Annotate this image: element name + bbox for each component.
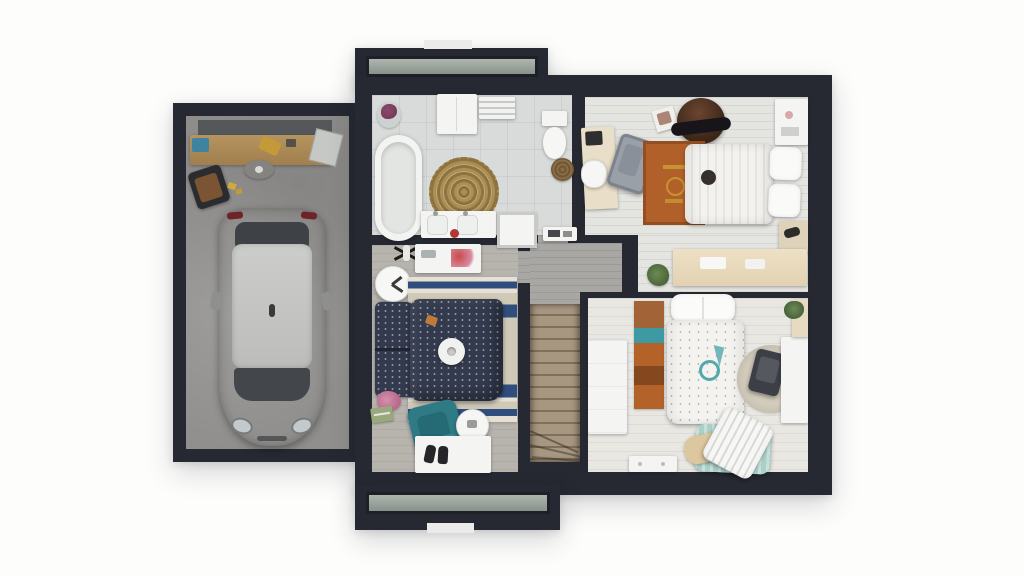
shoe-right — [438, 446, 449, 464]
window-sill-top — [424, 40, 472, 49]
sink-left — [427, 215, 448, 235]
faucet-left — [433, 211, 438, 216]
runner-rug — [634, 301, 664, 409]
bed2-pillows — [375, 302, 413, 397]
clock-hand-minute — [391, 283, 403, 292]
car — [219, 208, 325, 446]
bench-with-shoes — [415, 436, 491, 473]
bed1-duvet — [685, 144, 773, 224]
floor-stool — [244, 160, 274, 179]
wall-clock — [375, 266, 411, 302]
desk-clutter-red — [451, 249, 477, 267]
soap-red — [450, 229, 459, 238]
wall-cabinet — [437, 94, 477, 134]
towel-shelf — [479, 97, 515, 119]
bedroom2-doorway — [518, 251, 530, 283]
book — [370, 406, 394, 424]
floor-plan-render — [0, 0, 1024, 576]
window-strip-top — [366, 56, 538, 77]
bathtub — [375, 135, 422, 241]
power-tool — [258, 135, 282, 156]
papasan-chair — [677, 98, 725, 144]
bed1-pillows — [768, 146, 802, 217]
toolbox — [192, 138, 209, 152]
bed1-button — [701, 170, 716, 185]
car-roof — [232, 244, 312, 368]
window-sill-bottom — [427, 523, 474, 533]
faucet-right — [463, 211, 468, 216]
rug-emblem-bar-2 — [665, 199, 683, 203]
toilet — [541, 111, 568, 160]
sink-right — [457, 215, 478, 235]
shower-mat — [497, 212, 537, 248]
bedroom3-desk — [781, 337, 808, 423]
car-taillight-right — [301, 211, 318, 220]
car-taillight-left — [227, 211, 244, 220]
winder-step-edge-3 — [532, 456, 582, 462]
stair-landing — [530, 292, 580, 304]
rug-emblem-bar — [663, 165, 685, 169]
laundry-basket — [551, 158, 574, 181]
flower-vase — [377, 102, 401, 128]
teal-emblem-flag — [709, 345, 725, 367]
bed2 — [374, 299, 503, 401]
low-shelf — [629, 456, 677, 472]
staircase — [530, 304, 580, 462]
desk-chair — [581, 160, 607, 188]
clamp — [286, 139, 296, 147]
potted-plant — [647, 264, 669, 286]
car-roof-handle — [269, 304, 275, 317]
laptop — [585, 131, 603, 146]
car-windshield — [234, 368, 310, 401]
bed3-pillow — [671, 294, 735, 322]
shoe-dark — [783, 226, 801, 239]
hallway-floor — [530, 243, 622, 292]
bed3 — [667, 292, 744, 424]
dresser — [588, 340, 627, 434]
console-table — [673, 249, 807, 286]
round-cushion — [438, 338, 465, 365]
window-strip-bottom — [366, 492, 550, 514]
bedroom2-desk — [415, 244, 481, 273]
car-grille — [257, 436, 287, 441]
shoe-left — [423, 444, 437, 464]
hall-shelf — [543, 227, 577, 241]
wall-shelf — [775, 99, 808, 145]
rug-emblem-ring — [666, 177, 685, 196]
car-mirror-left — [210, 291, 224, 311]
